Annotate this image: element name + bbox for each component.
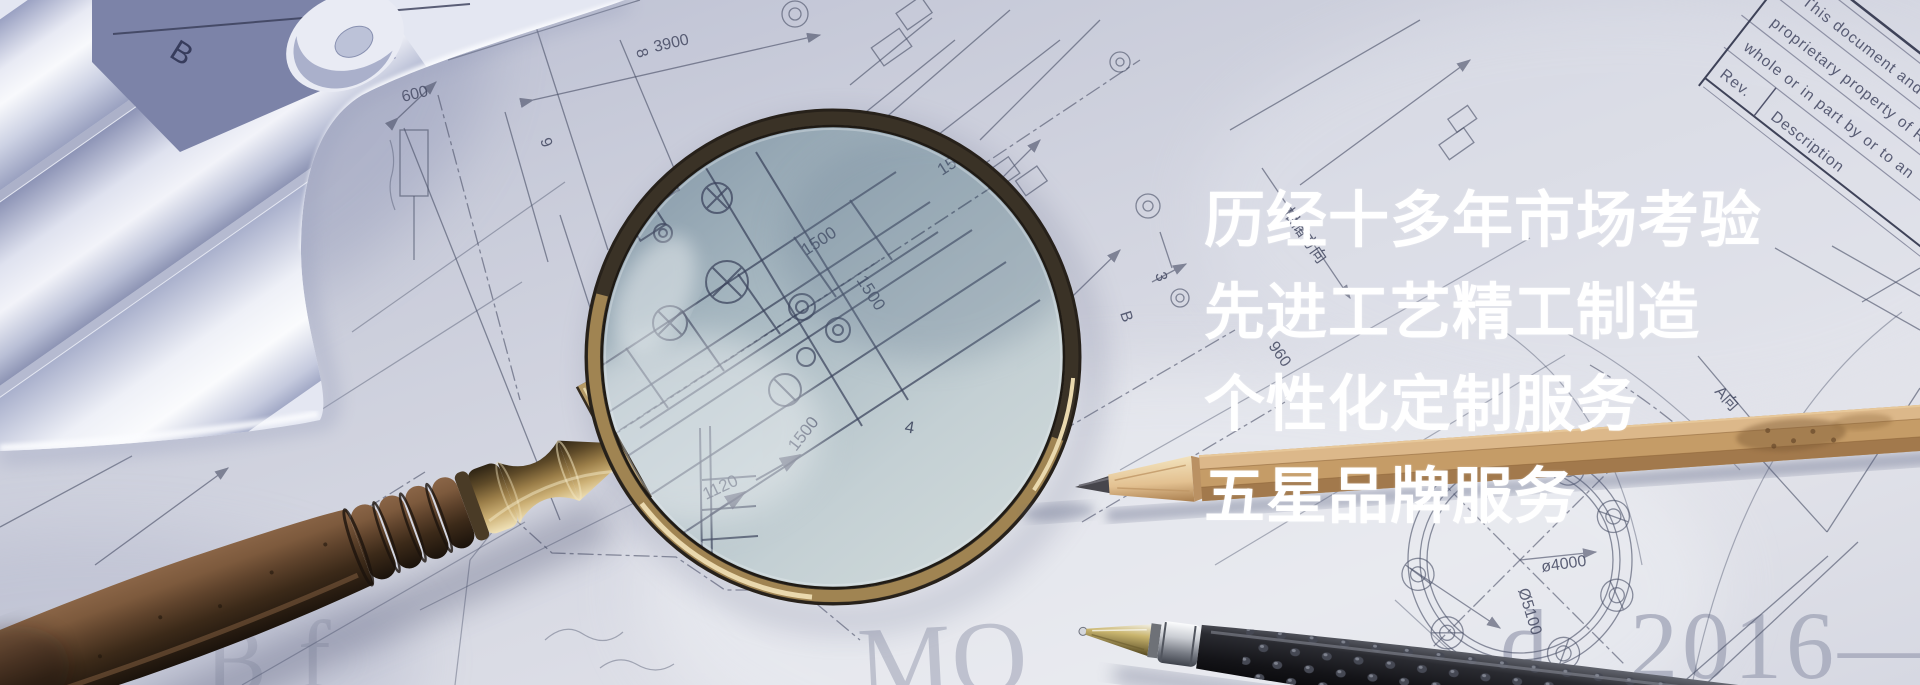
headline: 历经十多年市场考验 先进工艺精工制造 个性化定制服务 五星品牌服务 <box>1204 174 1762 542</box>
headline-line-4: 五星品牌服务 <box>1204 450 1762 542</box>
watermark-year: 2016— <box>1630 592 1920 685</box>
hero-banner: d 2016— MO B f <box>0 0 1920 685</box>
headline-line-3: 个性化定制服务 <box>1204 358 1762 450</box>
headline-line-1: 历经十多年市场考验 <box>1204 174 1762 266</box>
headline-line-2: 先进工艺精工制造 <box>1204 266 1762 358</box>
